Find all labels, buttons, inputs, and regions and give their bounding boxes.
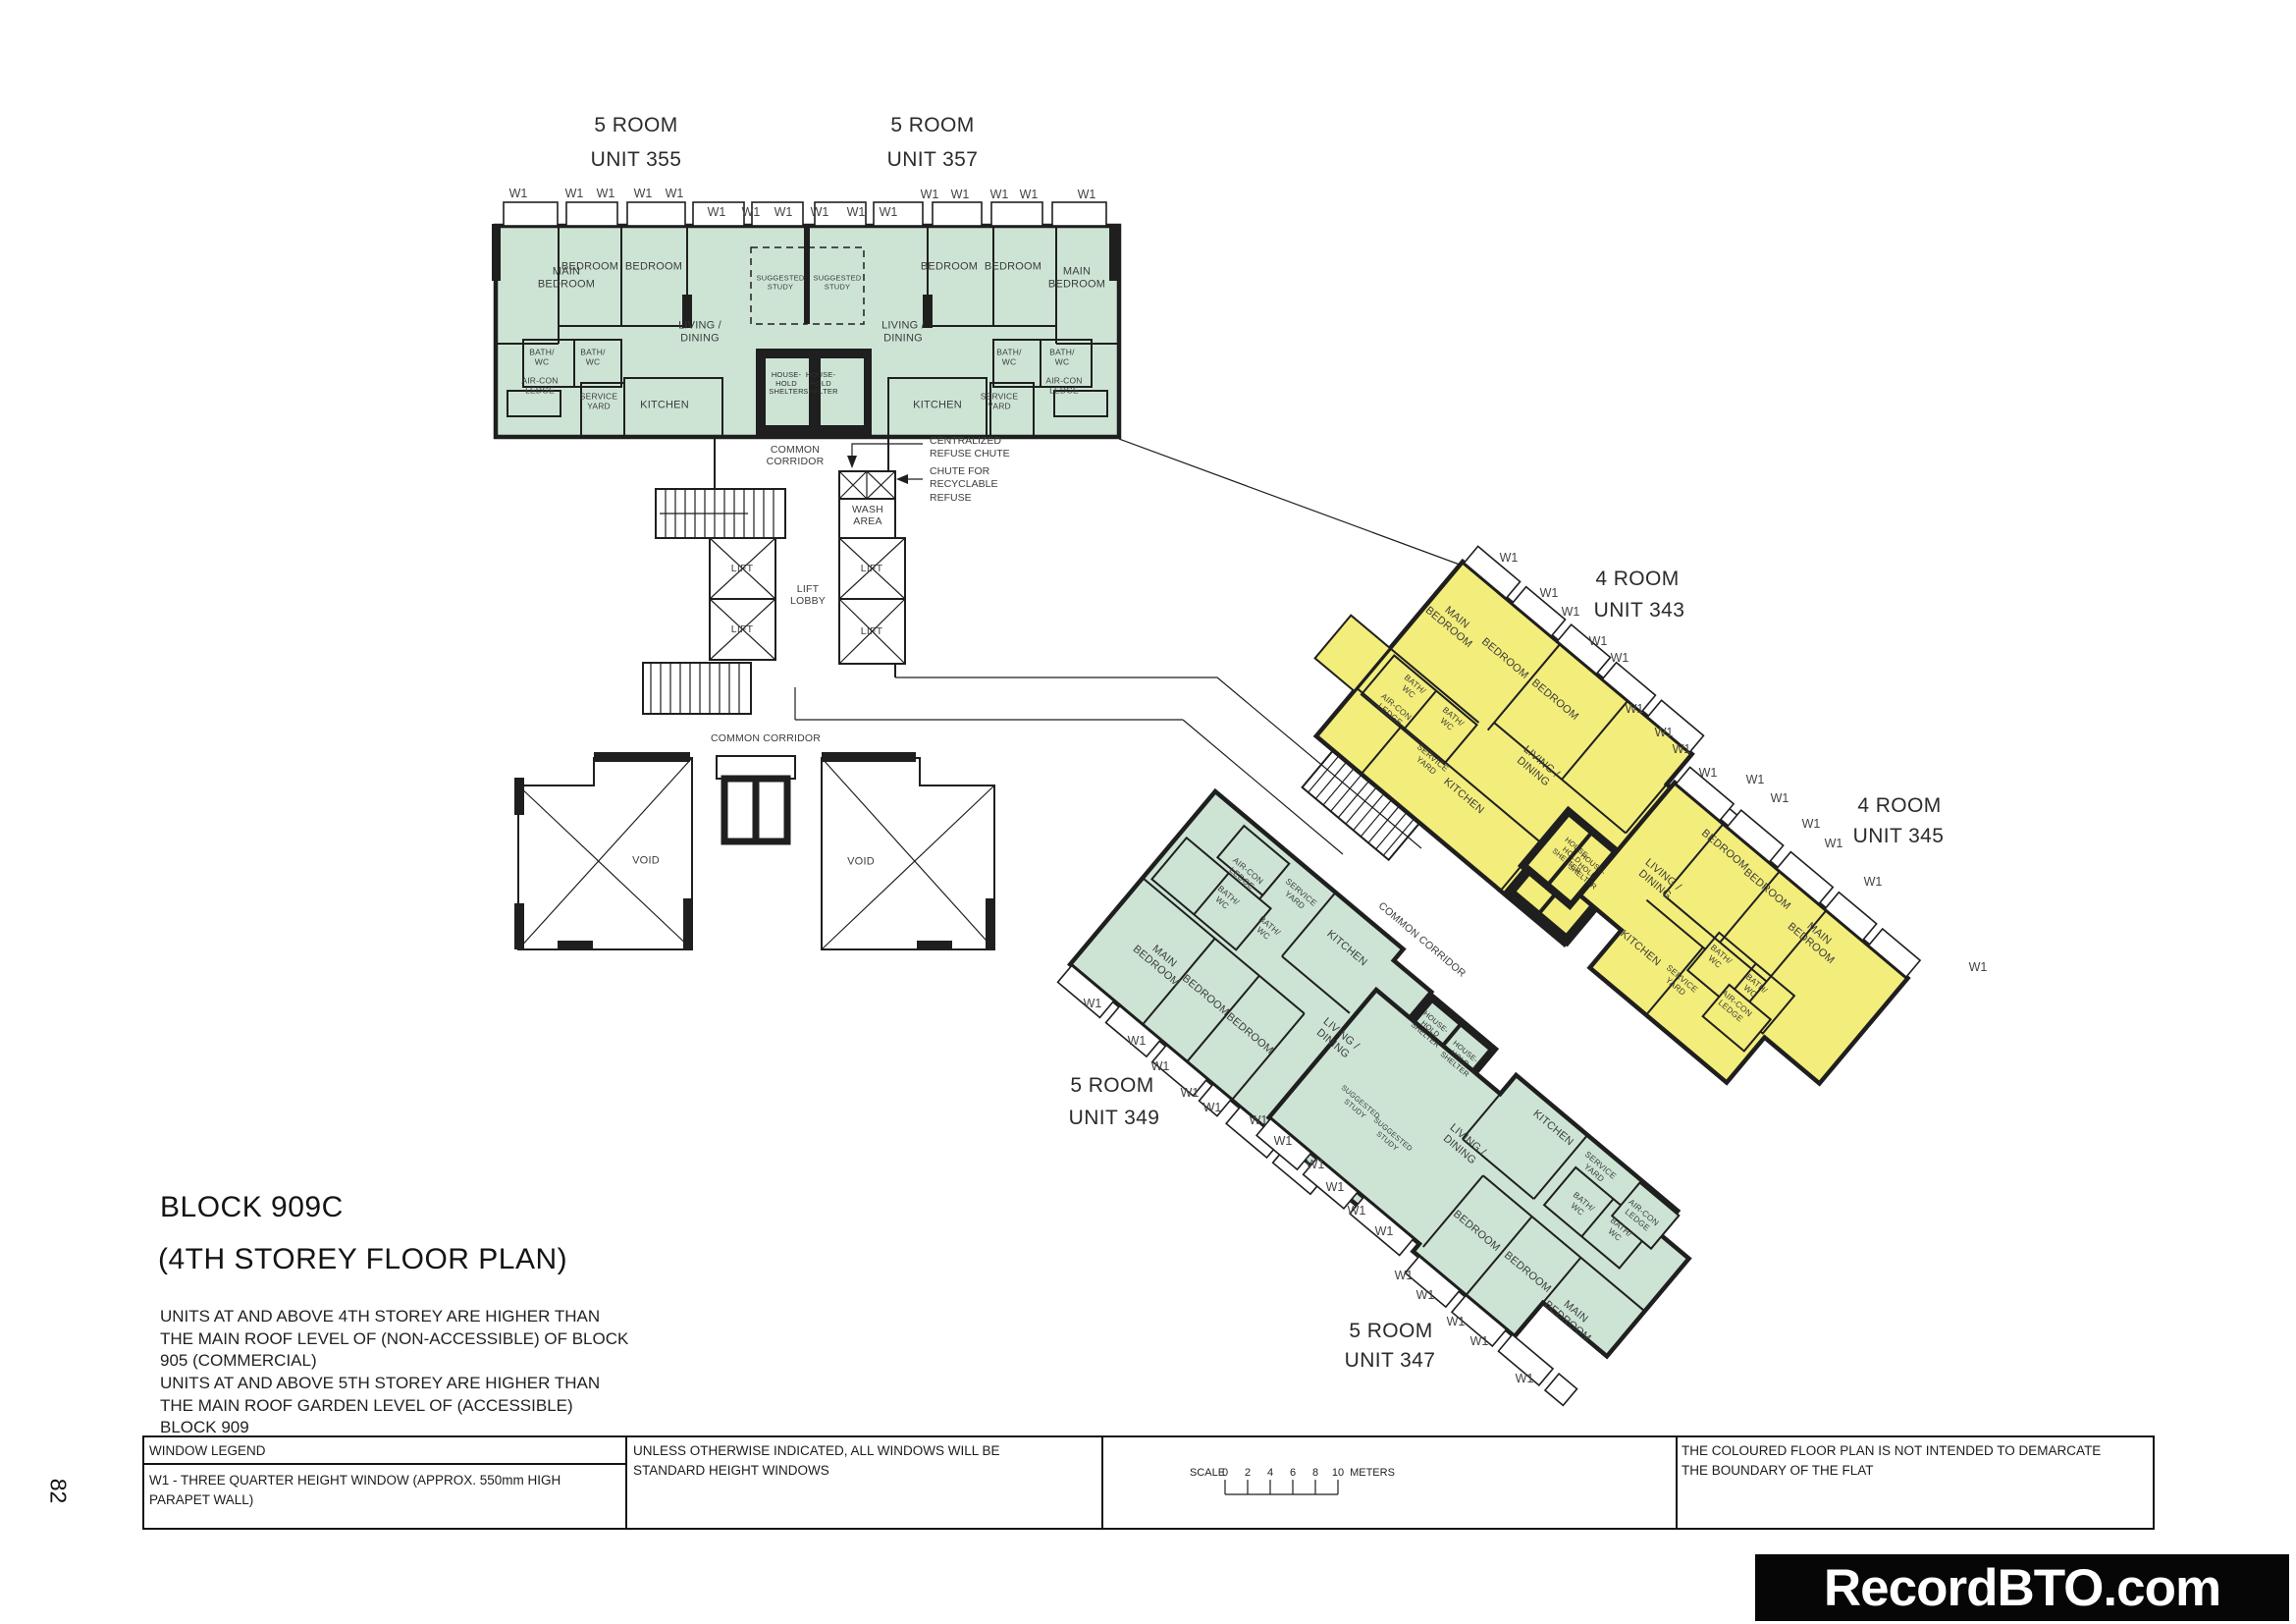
w1-marker: W1 [1348, 1204, 1366, 1218]
unit-355-title: UNIT 355 [591, 148, 682, 172]
lift-label: LIFT [861, 564, 882, 575]
room-label-bath-wc: BATH/ WC [1045, 348, 1079, 366]
w1-marker: W1 [921, 188, 939, 201]
w1-marker: W1 [1516, 1372, 1534, 1385]
room-label-kitchen: KITCHEN [640, 400, 689, 412]
w1-marker: W1 [1078, 188, 1096, 201]
void-areas-plan [514, 752, 994, 950]
w1-marker: W1 [1395, 1269, 1414, 1282]
room-label-living-dining: LIVING / DINING [875, 319, 932, 344]
recyclable-chute-note: CHUTE FOR RECYCLABLE REFUSE [930, 465, 1040, 505]
standard-windows-note: UNLESS OTHERWISE INDICATED, ALL WINDOWS … [633, 1441, 1075, 1480]
w1-marker: W1 [708, 205, 726, 219]
page-number: 82 [44, 1479, 71, 1504]
boundary-note: THE COLOURED FLOOR PLAN IS NOT INTENDED … [1682, 1441, 2113, 1480]
w1-marker: W1 [1181, 1086, 1200, 1100]
room-label-living-dining: LIVING / DINING [671, 319, 728, 344]
unit-345-type: 4 ROOM [1857, 794, 1941, 818]
centralized-refuse-chute-note: CENTRALIZED REFUSE CHUTE [930, 435, 1013, 461]
lift-label: LIFT [731, 624, 753, 636]
unit-347-type: 5 ROOM [1349, 1320, 1432, 1343]
room-label-service-yard: SERVICE YARD [579, 392, 618, 410]
lift-label: LIFT [731, 564, 753, 575]
w1-marker: W1 [1416, 1288, 1435, 1302]
w1-marker: W1 [1589, 634, 1608, 648]
w1-marker: W1 [1864, 875, 1883, 889]
table-divider [1101, 1437, 1103, 1528]
room-label-bath-wc: BATH/ WC [992, 348, 1026, 366]
common-corridor-label: COMMON CORRIDOR [711, 733, 821, 745]
window-legend-title: WINDOW LEGEND [149, 1441, 266, 1461]
w1-marker: W1 [1020, 188, 1039, 201]
w1-marker: W1 [509, 187, 528, 200]
page-subtitle: (4TH STOREY FLOOR PLAN) [158, 1243, 567, 1276]
w1-marker: W1 [1540, 586, 1559, 600]
room-label-service-yard: SERVICE YARD [980, 392, 1019, 410]
wash-area-label: WASH AREA [846, 505, 889, 528]
common-corridor-label: COMMON CORRIDOR [755, 445, 835, 468]
w1-marker: W1 [1771, 791, 1789, 805]
unit-355-357-windows [504, 202, 1106, 226]
plan-note-1: UNITS AT AND ABOVE 4TH STOREY ARE HIGHER… [160, 1306, 631, 1373]
unit-343-title: UNIT 343 [1594, 599, 1685, 623]
w1-marker: W1 [811, 205, 829, 219]
room-label-bedroom: BEDROOM [561, 261, 618, 274]
w1-marker: W1 [1802, 817, 1821, 831]
w1-marker: W1 [990, 188, 1009, 201]
w1-marker: W1 [1699, 766, 1718, 780]
window-legend-w1-description: W1 - THREE QUARTER HEIGHT WINDOW (APPROX… [149, 1471, 581, 1509]
w1-marker: W1 [1673, 742, 1691, 756]
w1-marker: W1 [1825, 837, 1843, 850]
room-label-bath-wc: BATH/ WC [576, 348, 610, 366]
unit-357-title: UNIT 357 [887, 148, 979, 172]
w1-marker: W1 [1084, 997, 1102, 1010]
scale-tick: 10 [1332, 1467, 1344, 1479]
room-label-suggested-study: SUGGESTED STUDY [812, 274, 863, 291]
room-label-bedroom: BEDROOM [625, 261, 682, 274]
scale-tick: 0 [1222, 1467, 1228, 1479]
scale-tick: 4 [1267, 1467, 1273, 1479]
unit-345-title: UNIT 345 [1853, 825, 1945, 848]
brand-site-name: RecordBTO.com [1824, 1558, 2220, 1618]
w1-marker: W1 [1611, 651, 1629, 665]
room-label-suggested-study: SUGGESTED STUDY [755, 274, 806, 291]
room-label-bedroom: BEDROOM [921, 261, 978, 274]
w1-marker: W1 [1307, 1158, 1325, 1171]
scale-unit: METERS [1350, 1467, 1395, 1479]
w1-marker: W1 [1375, 1224, 1394, 1238]
w1-marker: W1 [1500, 551, 1519, 565]
table-divider [1676, 1437, 1678, 1528]
room-label-aircon-ledge: AIR-CON LEDGE [1041, 376, 1088, 395]
w1-marker: W1 [774, 205, 793, 219]
plan-note-2: UNITS AT AND ABOVE 5TH STOREY ARE HIGHER… [160, 1373, 631, 1439]
unit-349-type: 5 ROOM [1070, 1074, 1153, 1098]
table-divider [625, 1437, 627, 1528]
lift-label: LIFT [861, 626, 882, 638]
w1-marker: W1 [1470, 1334, 1489, 1348]
scale-label: SCALE [1190, 1467, 1225, 1479]
room-label-main-bedroom: MAIN BEDROOM [1045, 265, 1108, 290]
w1-marker: W1 [847, 205, 866, 219]
void-label: VOID [847, 856, 875, 869]
w1-marker: W1 [1447, 1315, 1466, 1328]
page-title: BLOCK 909C [160, 1191, 344, 1224]
room-label-household-shelter: HOUSE- HOLD SHELTER [801, 371, 840, 397]
unit-355-type: 5 ROOM [594, 114, 677, 137]
w1-marker: W1 [597, 187, 615, 200]
room-label-aircon-ledge: AIR-CON LEDGE [516, 376, 563, 395]
w1-marker: W1 [1326, 1180, 1345, 1194]
w1-marker: W1 [1969, 960, 1988, 974]
w1-marker: W1 [1746, 773, 1765, 786]
unit-349-title: UNIT 349 [1069, 1107, 1160, 1130]
room-label-household-shelter: HOUSE- HOLD SHELTER [767, 371, 806, 397]
w1-marker: W1 [1151, 1059, 1170, 1073]
w1-marker: W1 [1626, 702, 1644, 716]
w1-marker: W1 [565, 187, 584, 200]
unit-343-type: 4 ROOM [1595, 568, 1679, 591]
table-divider [144, 1463, 625, 1465]
floor-plan-page: 5 ROOM UNIT 355 5 ROOM UNIT 357 4 ROOM U… [0, 0, 2296, 1624]
w1-marker: W1 [1655, 726, 1674, 739]
void-label: VOID [632, 855, 660, 868]
scale-tick: 2 [1245, 1467, 1251, 1479]
w1-marker: W1 [742, 205, 761, 219]
brand-watermark: RecordBTO.com [1755, 1554, 2289, 1621]
w1-marker: W1 [1128, 1034, 1147, 1048]
room-label-kitchen: KITCHEN [913, 400, 962, 412]
w1-marker: W1 [666, 187, 684, 200]
w1-marker: W1 [1274, 1134, 1293, 1148]
unit-357-type: 5 ROOM [890, 114, 974, 137]
w1-marker: W1 [1250, 1113, 1268, 1127]
scale-tick: 6 [1290, 1467, 1296, 1479]
room-label-bedroom: BEDROOM [985, 261, 1041, 274]
w1-marker: W1 [1203, 1101, 1222, 1114]
scale-tick: 8 [1312, 1467, 1318, 1479]
w1-marker: W1 [634, 187, 653, 200]
w1-marker: W1 [880, 205, 898, 219]
w1-marker: W1 [951, 188, 970, 201]
unit-347-title: UNIT 347 [1345, 1349, 1436, 1373]
w1-marker: W1 [1562, 605, 1580, 619]
room-label-bath-wc: BATH/ WC [525, 348, 559, 366]
lift-lobby-label: LIFT LOBBY [786, 584, 829, 608]
